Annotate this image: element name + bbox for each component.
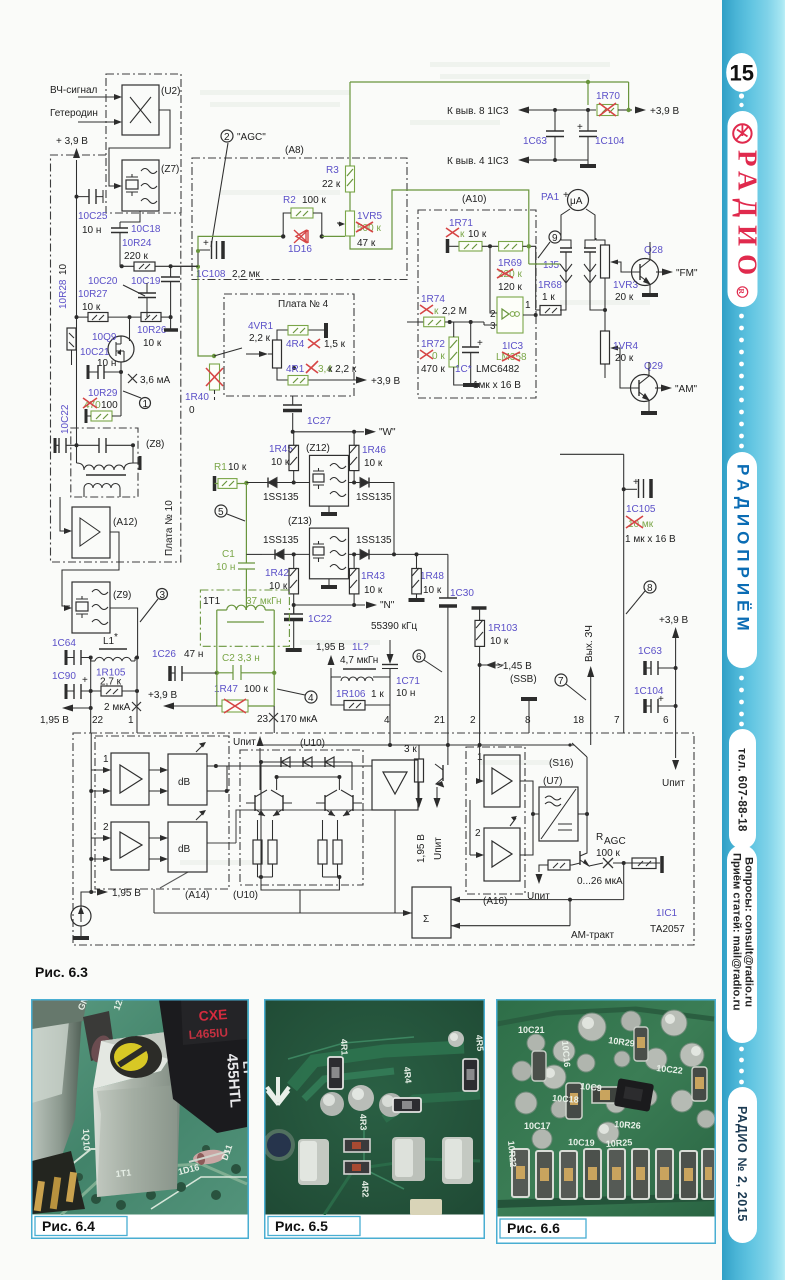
svg-text:Плата № 4: Плата № 4 — [278, 299, 329, 310]
svg-text:К выв. 8 1IC3: К выв. 8 1IC3 — [447, 106, 509, 117]
svg-text:Uпит: Uпит — [233, 737, 256, 748]
svg-text:3: 3 — [490, 321, 496, 332]
svg-text:1Q10: 1Q10 — [81, 1129, 92, 1151]
svg-text:1T1: 1T1 — [203, 596, 221, 607]
svg-text:1IC1: 1IC1 — [656, 908, 678, 919]
svg-text:(A16): (A16) — [483, 896, 507, 907]
svg-text:+3,9 В: +3,9 В — [650, 106, 680, 117]
svg-text:dB: dB — [178, 777, 191, 788]
svg-text:R2: R2 — [283, 195, 296, 206]
svg-text:+3,9 В: +3,9 В — [659, 615, 689, 626]
svg-text:10R26: 10R26 — [614, 1119, 641, 1131]
svg-text:(Z12): (Z12) — [306, 443, 330, 454]
svg-text:Рис. 6.5: Рис. 6.5 — [275, 1218, 328, 1234]
svg-text:4R4: 4R4 — [402, 1066, 413, 1083]
svg-text:1SS135: 1SS135 — [356, 535, 392, 546]
svg-text:100: 100 — [101, 400, 118, 411]
svg-text:2,2 мк: 2,2 мк — [232, 269, 261, 280]
svg-text:1R42: 1R42 — [265, 568, 289, 579]
svg-text:(A10): (A10) — [462, 194, 486, 205]
svg-text:(U2): (U2) — [161, 86, 180, 97]
svg-text:10C21: 10C21 — [518, 1025, 545, 1035]
svg-text:4R5: 4R5 — [474, 1034, 485, 1051]
svg-text:2: 2 — [490, 309, 496, 320]
svg-text:1SS135: 1SS135 — [356, 492, 392, 503]
svg-text:1R106: 1R106 — [336, 689, 366, 700]
svg-text:0 к: 0 к — [432, 351, 445, 362]
svg-text:10C19: 10C19 — [568, 1137, 595, 1148]
svg-text:10C25: 10C25 — [78, 211, 108, 222]
svg-text:РАДИОПРИЁМ: РАДИОПРИЁМ — [734, 464, 753, 636]
svg-text:1C63: 1C63 — [638, 646, 662, 657]
svg-text:+ 3,9 В: + 3,9 В — [56, 136, 88, 147]
svg-text:18: 18 — [573, 715, 585, 726]
svg-text:AGC: AGC — [604, 836, 626, 847]
svg-text:1,95 В: 1,95 В — [40, 715, 69, 726]
svg-text:2: 2 — [475, 828, 481, 839]
svg-text:C2 3,3 н: C2 3,3 н — [222, 653, 260, 664]
svg-text:10 н: 10 н — [216, 562, 235, 573]
svg-text:1R71: 1R71 — [449, 218, 473, 229]
svg-text:"N": "N" — [380, 600, 395, 611]
svg-text:1: 1 — [103, 754, 109, 765]
svg-text:Вопросы: consult@radio.ru: Вопросы: consult@radio.ru — [743, 857, 755, 1007]
svg-text:(Z9): (Z9) — [113, 590, 131, 601]
svg-text:2: 2 — [224, 132, 230, 143]
svg-text:10 к: 10 к — [423, 585, 442, 596]
svg-text:10R24: 10R24 — [122, 238, 152, 249]
svg-text:"AM": "AM" — [675, 384, 698, 395]
svg-text:10C17: 10C17 — [524, 1121, 551, 1131]
svg-text:L1: L1 — [103, 636, 115, 647]
svg-text:РАДИО № 2, 2015: РАДИО № 2, 2015 — [735, 1106, 749, 1222]
svg-text:ВЧ-сигнал: ВЧ-сигнал — [50, 85, 98, 96]
svg-text:L465IU: L465IU — [188, 1025, 228, 1042]
svg-text:10R26: 10R26 — [137, 325, 167, 336]
svg-text:1C104: 1C104 — [595, 136, 625, 147]
svg-text:47 н: 47 н — [184, 649, 203, 660]
svg-text:4R1: 4R1 — [339, 1039, 350, 1056]
svg-text:3 к: 3 к — [404, 744, 417, 755]
svg-text:4R3: 4R3 — [358, 1114, 369, 1131]
svg-text:μА: μА — [570, 196, 583, 207]
svg-text:(Z7): (Z7) — [161, 164, 179, 175]
svg-text:55390 кГц: 55390 кГц — [371, 621, 417, 632]
svg-text:4VR1: 4VR1 — [248, 321, 273, 332]
svg-text:1C63: 1C63 — [523, 136, 547, 147]
svg-text:1 к: 1 к — [542, 292, 555, 303]
svg-text:1D16: 1D16 — [288, 244, 312, 255]
svg-text:10Q9: 10Q9 — [92, 332, 117, 343]
svg-text:21: 21 — [434, 715, 446, 726]
svg-text:R: R — [737, 289, 746, 295]
svg-text:22 к: 22 к — [322, 179, 341, 190]
svg-text:+: + — [82, 675, 88, 686]
svg-text:Плата № 10: Плата № 10 — [164, 500, 175, 556]
svg-text:10 н: 10 н — [97, 358, 116, 369]
svg-text:1R46: 1R46 — [362, 445, 386, 456]
svg-text:10 к: 10 к — [143, 338, 162, 349]
svg-text:8: 8 — [525, 715, 531, 726]
svg-text:1 к: 1 к — [371, 689, 384, 700]
svg-text:10 к: 10 к — [228, 462, 247, 473]
svg-text:+3,9 В: +3,9 В — [371, 376, 401, 387]
svg-text:100 к: 100 к — [302, 195, 326, 206]
svg-text:10 н: 10 н — [396, 688, 415, 699]
svg-text:10C19: 10C19 — [131, 276, 161, 287]
svg-text:2: 2 — [103, 822, 109, 833]
svg-text:7: 7 — [614, 715, 620, 726]
svg-text:10C18: 10C18 — [552, 1093, 579, 1105]
svg-text:Uпит: Uпит — [662, 778, 685, 789]
svg-text:1R40: 1R40 — [185, 392, 209, 403]
svg-text:10R25: 10R25 — [605, 1137, 632, 1149]
svg-text:РАДИО: РАДИО — [733, 150, 763, 283]
svg-text:Рис. 6.4: Рис. 6.4 — [42, 1218, 95, 1234]
svg-text:Рис. 6.6: Рис. 6.6 — [507, 1220, 560, 1236]
svg-text:Q28: Q28 — [644, 245, 663, 256]
svg-text:1L?: 1L? — [352, 642, 369, 653]
svg-text:1,95 В: 1,95 В — [416, 834, 427, 863]
svg-text:5: 5 — [218, 507, 224, 518]
svg-text:C1: C1 — [222, 549, 235, 560]
svg-text:Uпит: Uпит — [433, 837, 444, 860]
svg-text:+: + — [477, 338, 483, 349]
svg-text:(SSB): (SSB) — [510, 674, 537, 685]
svg-text:1C90: 1C90 — [52, 671, 76, 682]
svg-text:(Z8): (Z8) — [146, 439, 164, 450]
svg-text:4,7 мкГн: 4,7 мкГн — [340, 655, 378, 666]
svg-text:LMC6482: LMC6482 — [476, 364, 520, 375]
svg-text:1 мк x 16 В: 1 мк x 16 В — [625, 534, 676, 545]
svg-text:тел. 607-88-18: тел. 607-88-18 — [736, 748, 748, 832]
svg-text:R3: R3 — [326, 165, 339, 176]
svg-text:1VR5: 1VR5 — [357, 211, 382, 222]
svg-text:10C21: 10C21 — [80, 347, 110, 358]
svg-text:0...26 мкА: 0...26 мкА — [577, 876, 623, 887]
svg-text:(A12): (A12) — [113, 517, 137, 528]
svg-text:к: к — [434, 306, 439, 317]
svg-text:1R47: 1R47 — [214, 684, 238, 695]
svg-text:10C20: 10C20 — [88, 276, 118, 287]
svg-text:*: * — [114, 632, 118, 643]
svg-text:ТА2057: ТА2057 — [650, 924, 685, 935]
svg-text:1R48: 1R48 — [420, 571, 444, 582]
svg-text:3: 3 — [160, 590, 166, 601]
svg-text:0: 0 — [189, 405, 195, 416]
svg-text:(A8): (A8) — [285, 145, 304, 156]
svg-text:1R72: 1R72 — [421, 339, 445, 350]
svg-text:10 к: 10 к — [490, 636, 509, 647]
svg-text:1T1: 1T1 — [115, 1167, 131, 1179]
svg-text:3,6 мА: 3,6 мА — [140, 375, 171, 386]
svg-text:CXE: CXE — [198, 1006, 228, 1024]
svg-text:Вых. ЗЧ: Вых. ЗЧ — [584, 625, 595, 662]
svg-text:К выв. 4 1IC3: К выв. 4 1IC3 — [447, 156, 509, 167]
svg-text:100 к: 100 к — [244, 684, 268, 695]
svg-text:4: 4 — [308, 693, 314, 704]
svg-text:(U10): (U10) — [300, 738, 325, 749]
svg-text:к: к — [460, 229, 465, 240]
svg-text:R1: R1 — [214, 462, 227, 473]
svg-text:(A14): (A14) — [185, 890, 209, 901]
svg-text:170 мкА: 170 мкА — [280, 714, 318, 725]
svg-text:4R4: 4R4 — [286, 339, 305, 350]
svg-text:10 к: 10 к — [82, 302, 101, 313]
svg-text:>1,45 В: >1,45 В — [497, 661, 532, 672]
svg-text:(Z13): (Z13) — [288, 516, 312, 527]
svg-text:1VR3: 1VR3 — [613, 280, 638, 291]
svg-text:+: + — [203, 238, 209, 249]
svg-text:2: 2 — [470, 715, 476, 726]
svg-text:15: 15 — [729, 61, 753, 86]
svg-text:10 к: 10 к — [364, 585, 383, 596]
svg-text:1R69: 1R69 — [498, 258, 522, 269]
svg-text:"FM": "FM" — [676, 268, 698, 279]
svg-text:9: 9 — [552, 233, 558, 244]
svg-text:6: 6 — [663, 715, 669, 726]
svg-text:1SS135: 1SS135 — [263, 492, 299, 503]
svg-text:1,95 В: 1,95 В — [112, 888, 141, 899]
svg-text:1J5: 1J5 — [543, 260, 560, 271]
svg-text:1: 1 — [143, 399, 149, 410]
svg-text:2 мкА: 2 мкА — [104, 702, 131, 713]
svg-text:"W": "W" — [379, 427, 396, 438]
svg-text:20 к: 20 к — [615, 292, 634, 303]
svg-text:4R1: 4R1 — [286, 364, 305, 375]
svg-text:1C71: 1C71 — [396, 676, 420, 687]
svg-text:(S16): (S16) — [549, 758, 573, 769]
svg-text:Q29: Q29 — [644, 361, 663, 372]
svg-text:1C26: 1C26 — [152, 649, 176, 660]
svg-text:220 к: 220 к — [124, 251, 148, 262]
svg-text:Гетеродин: Гетеродин — [50, 108, 98, 119]
svg-text:PA1: PA1 — [541, 192, 560, 203]
svg-text:10 н: 10 н — [82, 225, 101, 236]
svg-text:к 2,2 к: к 2,2 к — [328, 364, 357, 375]
svg-text:1: 1 — [525, 300, 531, 311]
svg-text:8: 8 — [647, 583, 653, 594]
svg-text:10C18: 10C18 — [131, 224, 161, 235]
svg-text:10R29: 10R29 — [88, 388, 118, 399]
svg-text:1: 1 — [128, 715, 134, 726]
svg-text:(U10): (U10) — [233, 890, 258, 901]
svg-text:(U7): (U7) — [543, 776, 562, 787]
svg-text:1мк x 16 В: 1мк x 16 В — [473, 380, 521, 391]
svg-text:10 к: 10 к — [364, 458, 383, 469]
svg-text:1R103: 1R103 — [488, 623, 518, 634]
svg-text:470 к: 470 к — [421, 364, 445, 375]
svg-text:1C108: 1C108 — [196, 269, 226, 280]
svg-text:1C64: 1C64 — [52, 638, 76, 649]
svg-text:100 к: 100 к — [596, 848, 620, 859]
svg-text:+: + — [658, 694, 664, 705]
svg-text:1R70: 1R70 — [596, 91, 620, 102]
svg-text:Приём статей: mail@radio.ru: Приём статей: mail@radio.ru — [731, 853, 743, 1011]
svg-text:4: 4 — [384, 715, 390, 726]
svg-text:1C22: 1C22 — [308, 614, 332, 625]
svg-text:1C105: 1C105 — [626, 504, 656, 515]
svg-text:6: 6 — [416, 652, 422, 663]
svg-text:4R2: 4R2 — [360, 1181, 371, 1198]
svg-text:10: 10 — [58, 263, 69, 275]
svg-text:1,95 В: 1,95 В — [316, 642, 345, 653]
svg-text:22: 22 — [92, 715, 104, 726]
svg-text:1R43: 1R43 — [361, 571, 385, 582]
svg-text:+3,9 В: +3,9 В — [148, 690, 178, 701]
svg-text:Σ: Σ — [423, 914, 429, 925]
svg-text:"AGC": "AGC" — [237, 132, 266, 143]
svg-text:10R27: 10R27 — [78, 289, 108, 300]
svg-text:1C*: 1C* — [455, 364, 472, 375]
svg-text:10C22: 10C22 — [60, 404, 71, 434]
svg-text:10R28: 10R28 — [58, 279, 69, 309]
svg-text:1IC3: 1IC3 — [502, 341, 524, 352]
svg-text:7: 7 — [558, 676, 564, 687]
svg-text:R: R — [596, 832, 603, 843]
svg-text:1R68: 1R68 — [538, 280, 562, 291]
svg-text:1VR4: 1VR4 — [613, 341, 638, 352]
svg-text:1R74: 1R74 — [421, 294, 445, 305]
svg-text:10 к: 10 к — [271, 457, 290, 468]
svg-text:10 к: 10 к — [468, 229, 487, 240]
svg-text:120 к: 120 к — [498, 282, 522, 293]
svg-text:АМ-тракт: АМ-тракт — [571, 930, 615, 941]
svg-text:1,5 к: 1,5 к — [324, 339, 346, 350]
svg-text:dB: dB — [178, 844, 191, 855]
svg-text:47 к: 47 к — [357, 238, 376, 249]
svg-text:1C27: 1C27 — [307, 416, 331, 427]
svg-text:23: 23 — [257, 714, 269, 725]
svg-text:20 к: 20 к — [615, 353, 634, 364]
svg-text:2,2 М: 2,2 М — [442, 306, 467, 317]
svg-text:Uпит: Uпит — [527, 891, 550, 902]
svg-text:1SS135: 1SS135 — [263, 535, 299, 546]
svg-text:2,2 к: 2,2 к — [249, 333, 271, 344]
